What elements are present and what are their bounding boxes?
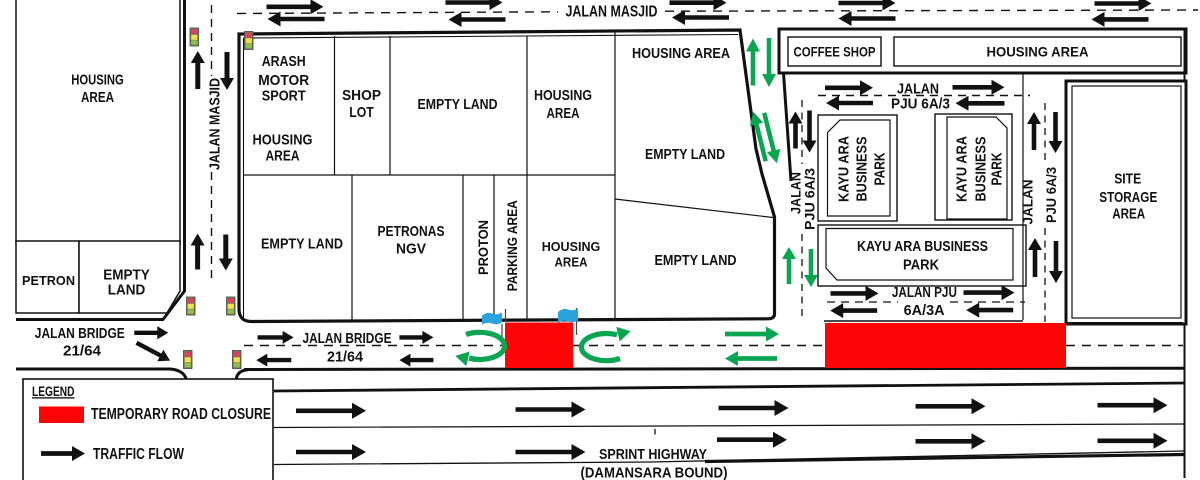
svg-text:6A/3A: 6A/3A	[904, 302, 945, 319]
svg-text:JALAN PJU: JALAN PJU	[892, 284, 957, 301]
svg-text:(DAMANSARA BOUND): (DAMANSARA BOUND)	[581, 466, 728, 480]
svg-text:HOUSING: HOUSING	[542, 239, 601, 254]
svg-text:NGV: NGV	[396, 241, 426, 258]
svg-text:EMPTY LAND: EMPTY LAND	[261, 236, 343, 253]
svg-text:HOUSING AREA: HOUSING AREA	[632, 45, 730, 62]
svg-text:HOUSING: HOUSING	[71, 72, 124, 89]
svg-text:JALAN: JALAN	[789, 172, 804, 214]
svg-text:PETRON: PETRON	[22, 273, 75, 288]
svg-text:PJU 6A/3: PJU 6A/3	[891, 96, 950, 113]
svg-text:KAYU ARA: KAYU ARA	[836, 136, 853, 202]
svg-text:PJU 6A/3: PJU 6A/3	[1044, 167, 1059, 223]
svg-text:PROTON: PROTON	[475, 220, 491, 275]
svg-text:EMPTY LAND: EMPTY LAND	[655, 252, 737, 269]
svg-text:JALAN: JALAN	[1021, 180, 1036, 225]
svg-text:JALAN MASJID: JALAN MASJID	[566, 4, 658, 21]
svg-text:HOUSING: HOUSING	[253, 132, 313, 149]
svg-text:BUSINESS: BUSINESS	[973, 137, 990, 202]
svg-text:TEMPORARY ROAD CLOSURE: TEMPORARY ROAD CLOSURE	[91, 406, 271, 423]
svg-text:STORAGE: STORAGE	[1099, 189, 1157, 206]
svg-text:AREA: AREA	[547, 105, 580, 122]
svg-text:PJU 6A/3: PJU 6A/3	[803, 167, 818, 230]
svg-text:AREA: AREA	[555, 255, 589, 270]
svg-text:MOTOR: MOTOR	[258, 72, 309, 89]
svg-text:HOUSING AREA: HOUSING AREA	[987, 44, 1089, 60]
svg-text:SPRINT HIGHWAY: SPRINT HIGHWAY	[599, 447, 707, 463]
svg-text:SPORT: SPORT	[262, 88, 306, 105]
svg-text:21/64: 21/64	[327, 349, 364, 366]
svg-text:LEGEND: LEGEND	[32, 384, 75, 399]
svg-text:ARASH: ARASH	[262, 53, 306, 70]
svg-text:EMPTY LAND: EMPTY LAND	[645, 146, 725, 163]
svg-text:BUSINESS: BUSINESS	[854, 137, 871, 202]
svg-text:PARKING AREA: PARKING AREA	[504, 200, 520, 291]
svg-text:PARK: PARK	[872, 152, 889, 185]
svg-text:PARK: PARK	[903, 257, 939, 274]
svg-text:SITE: SITE	[1114, 171, 1141, 188]
svg-text:KAYU ARA: KAYU ARA	[954, 136, 971, 202]
svg-text:AREA: AREA	[1112, 206, 1145, 223]
svg-text:LOT: LOT	[349, 104, 374, 121]
svg-text:HOUSING: HOUSING	[534, 87, 592, 104]
svg-text:EMPTY LAND: EMPTY LAND	[418, 96, 498, 113]
svg-text:COFFEE SHOP: COFFEE SHOP	[794, 44, 876, 60]
svg-text:21/64: 21/64	[63, 343, 102, 360]
svg-text:JALAN BRIDGE: JALAN BRIDGE	[35, 325, 125, 342]
svg-text:AREA: AREA	[81, 89, 114, 106]
svg-text:PARK: PARK	[989, 152, 1006, 185]
svg-text:SHOP: SHOP	[342, 87, 381, 104]
svg-text:JALAN BRIDGE: JALAN BRIDGE	[303, 330, 392, 347]
svg-text:KAYU ARA BUSINESS: KAYU ARA BUSINESS	[857, 238, 988, 255]
svg-text:JALAN MASJID: JALAN MASJID	[207, 78, 224, 170]
svg-text:LAND: LAND	[108, 282, 146, 299]
svg-text:TRAFFIC FLOW: TRAFFIC FLOW	[93, 446, 184, 463]
svg-text:PETRONAS: PETRONAS	[378, 223, 445, 240]
svg-text:AREA: AREA	[266, 148, 300, 165]
